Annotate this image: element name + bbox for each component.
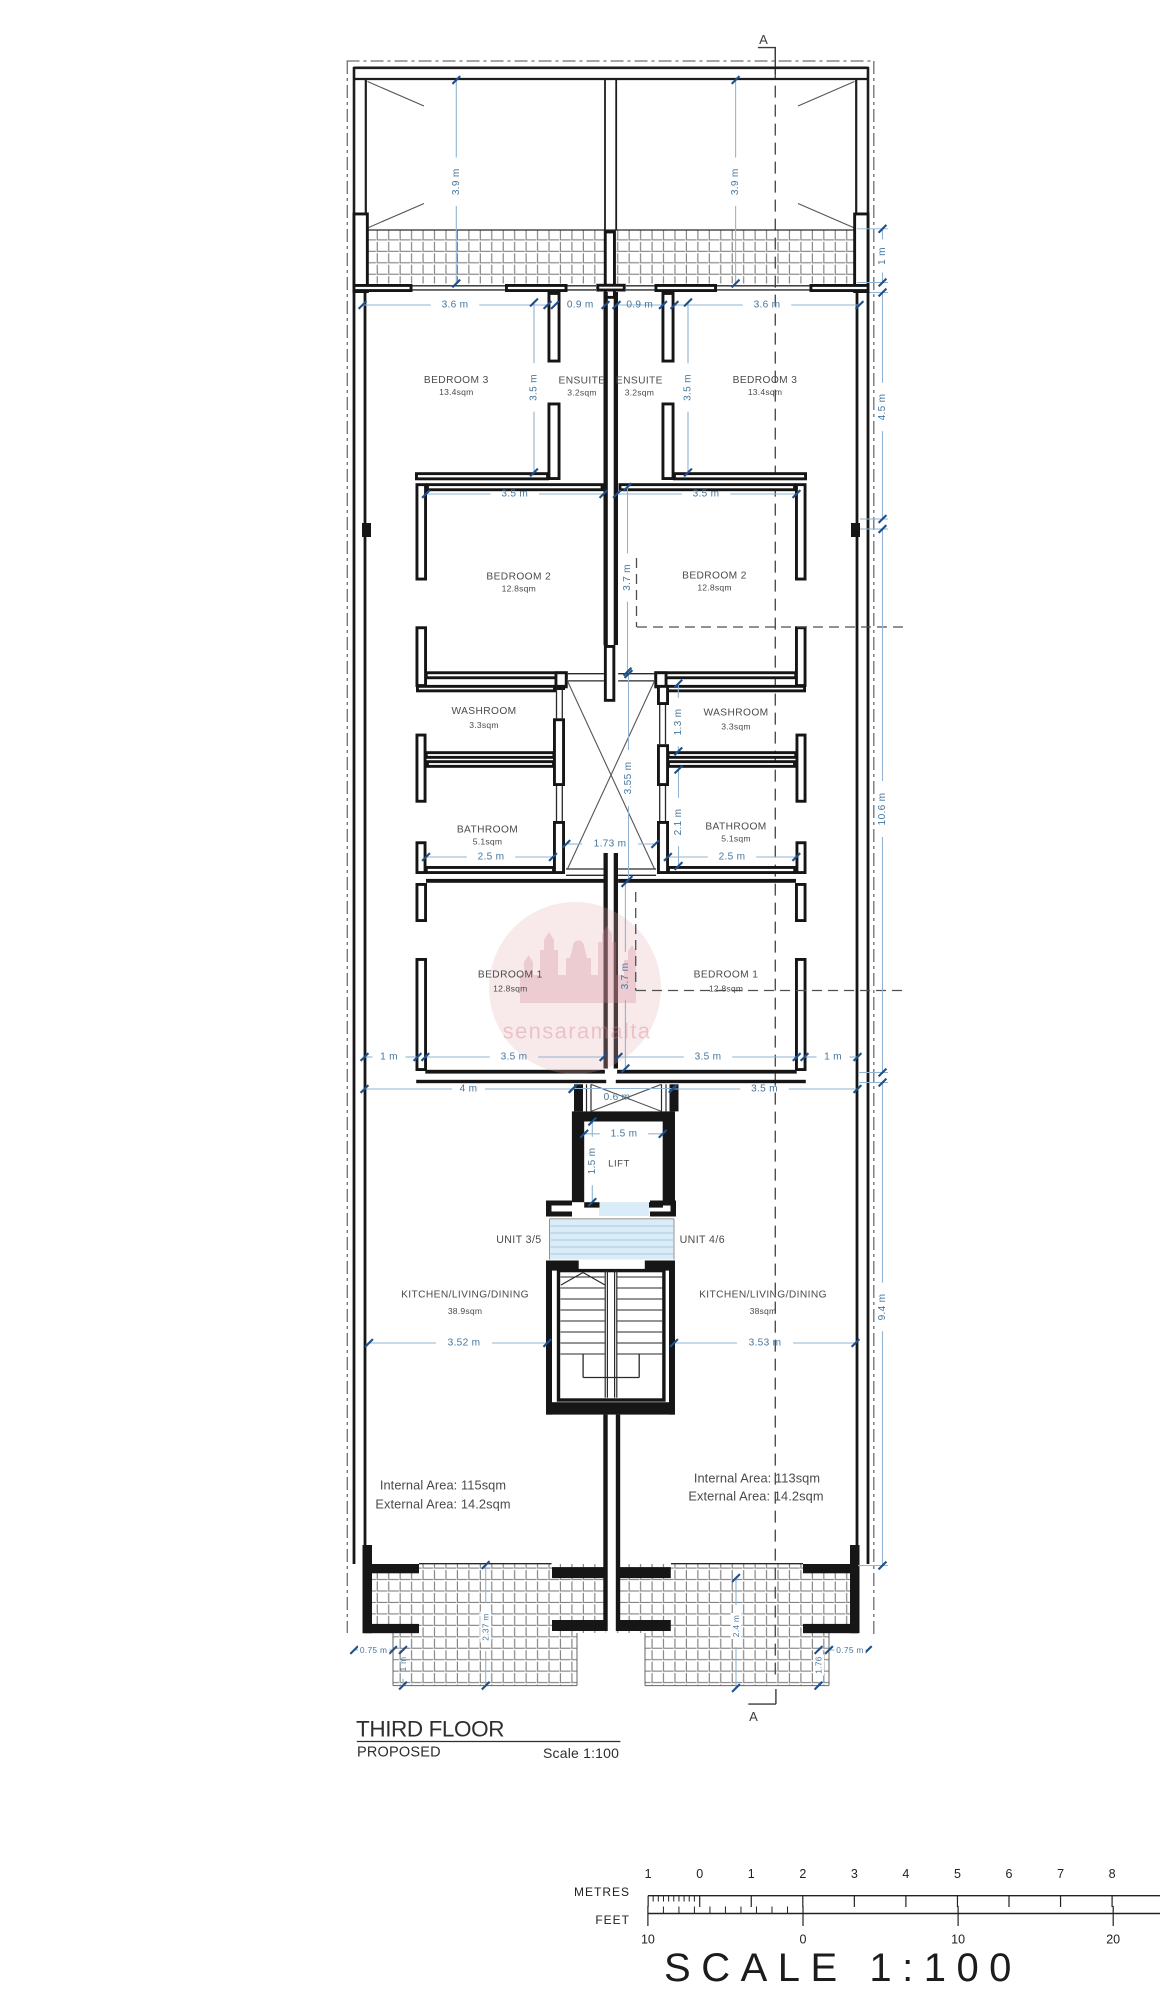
svg-text:ENSUITE: ENSUITE [616, 376, 663, 387]
svg-text:SCALE 1:100: SCALE 1:100 [664, 1946, 1022, 1990]
svg-text:ENSUITE: ENSUITE [559, 376, 606, 387]
svg-text:4 m: 4 m [460, 1084, 478, 1095]
svg-text:0.75 m: 0.75 m [360, 1645, 387, 1655]
svg-text:1.73 m: 1.73 m [594, 839, 627, 850]
svg-text:1.5 m: 1.5 m [611, 1128, 638, 1139]
svg-text:THIRD FLOOR: THIRD FLOOR [356, 1717, 504, 1742]
svg-text:3.55 m: 3.55 m [623, 762, 634, 795]
svg-text:3.6 m: 3.6 m [442, 300, 469, 311]
svg-text:3.7 m: 3.7 m [622, 564, 633, 591]
svg-text:PROPOSED: PROPOSED [357, 1745, 441, 1761]
svg-text:3.9 m: 3.9 m [451, 168, 462, 195]
svg-text:FEET: FEET [595, 1913, 630, 1927]
svg-text:External Area: 14.2sqm: External Area: 14.2sqm [688, 1489, 823, 1504]
svg-text:3.5 m: 3.5 m [501, 489, 528, 500]
svg-text:3.5 m: 3.5 m [683, 374, 694, 401]
svg-text:METRES: METRES [574, 1885, 630, 1899]
svg-text:2.4 m: 2.4 m [731, 1615, 741, 1637]
svg-text:BEDROOM 2: BEDROOM 2 [682, 571, 747, 582]
svg-text:12.8sqm: 12.8sqm [502, 584, 536, 594]
svg-text:BATHROOM: BATHROOM [457, 825, 518, 836]
svg-text:20: 20 [1106, 1933, 1120, 1947]
svg-text:13.4sqm: 13.4sqm [748, 387, 782, 397]
svg-text:5: 5 [954, 1867, 961, 1881]
svg-text:12.8sqm: 12.8sqm [493, 984, 527, 994]
svg-text:4: 4 [902, 1867, 909, 1881]
svg-text:WASHROOM: WASHROOM [451, 706, 516, 717]
svg-text:1: 1 [645, 1867, 652, 1881]
svg-text:0: 0 [800, 1933, 807, 1947]
svg-text:3.3sqm: 3.3sqm [469, 720, 498, 730]
svg-text:3.52 m: 3.52 m [448, 1338, 481, 1349]
svg-text:2.5 m: 2.5 m [478, 852, 505, 863]
svg-text:12.8sqm: 12.8sqm [697, 583, 731, 593]
svg-text:0.6 m: 0.6 m [604, 1092, 631, 1103]
svg-text:1 m: 1 m [380, 1052, 398, 1063]
svg-text:Internal Area: 115sqm: Internal Area: 115sqm [380, 1478, 506, 1493]
svg-text:10: 10 [641, 1933, 655, 1947]
svg-text:Scale 1:100: Scale 1:100 [543, 1745, 619, 1761]
svg-text:5.1sqm: 5.1sqm [473, 837, 502, 847]
svg-text:3.53 m: 3.53 m [749, 1338, 782, 1349]
svg-text:12.8sqm: 12.8sqm [709, 984, 743, 994]
svg-text:3.5 m: 3.5 m [695, 1052, 722, 1063]
svg-text:0.75 m: 0.75 m [836, 1645, 863, 1655]
svg-text:1: 1 [748, 1867, 755, 1881]
svg-text:2.37 m: 2.37 m [481, 1613, 491, 1640]
svg-text:BEDROOM 1: BEDROOM 1 [478, 970, 543, 981]
svg-text:6: 6 [1006, 1867, 1013, 1881]
svg-text:1.3 m: 1.3 m [673, 709, 684, 736]
svg-text:BEDROOM 1: BEDROOM 1 [694, 970, 759, 981]
svg-text:38sqm: 38sqm [750, 1306, 777, 1316]
svg-text:9.4 m: 9.4 m [877, 1294, 888, 1321]
svg-text:8: 8 [1109, 1867, 1116, 1881]
svg-text:5.1sqm: 5.1sqm [721, 834, 750, 844]
svg-text:10: 10 [951, 1933, 965, 1947]
svg-text:1.5 m: 1.5 m [587, 1148, 598, 1175]
svg-text:A: A [749, 1709, 758, 1724]
svg-text:38.9sqm: 38.9sqm [448, 1306, 482, 1316]
svg-text:KITCHEN/LIVING/DINING: KITCHEN/LIVING/DINING [401, 1290, 529, 1301]
svg-text:2.5 m: 2.5 m [719, 852, 746, 863]
svg-text:WASHROOM: WASHROOM [703, 708, 768, 719]
svg-text:1 m: 1 m [398, 1657, 408, 1672]
svg-text:3.6 m: 3.6 m [754, 300, 781, 311]
svg-text:A: A [759, 32, 768, 47]
svg-text:sensaramalta: sensaramalta [503, 1019, 652, 1044]
svg-text:1.76: 1.76 [814, 1656, 824, 1674]
svg-text:BEDROOM 3: BEDROOM 3 [733, 375, 798, 386]
svg-text:KITCHEN/LIVING/DINING: KITCHEN/LIVING/DINING [699, 1290, 827, 1301]
svg-text:3.5 m: 3.5 m [693, 489, 720, 500]
svg-text:UNIT 3/5: UNIT 3/5 [496, 1234, 541, 1246]
svg-text:2: 2 [799, 1867, 806, 1881]
svg-text:0.9 m: 0.9 m [626, 300, 653, 311]
svg-text:3.3sqm: 3.3sqm [721, 722, 750, 732]
svg-text:3.5 m: 3.5 m [529, 374, 540, 401]
svg-text:0: 0 [696, 1867, 703, 1881]
svg-text:Internal Area: 113sqm: Internal Area: 113sqm [694, 1471, 820, 1486]
svg-text:External Area: 14.2sqm: External Area: 14.2sqm [375, 1497, 510, 1512]
svg-text:BEDROOM 2: BEDROOM 2 [486, 572, 551, 583]
svg-text:3.2sqm: 3.2sqm [625, 388, 654, 398]
svg-text:2.1 m: 2.1 m [673, 809, 684, 836]
svg-text:0.9 m: 0.9 m [567, 300, 594, 311]
svg-text:BEDROOM 3: BEDROOM 3 [424, 375, 489, 386]
svg-text:3.5 m: 3.5 m [751, 1084, 778, 1095]
svg-text:1 m: 1 m [824, 1052, 842, 1063]
svg-text:3.5 m: 3.5 m [501, 1052, 528, 1063]
svg-text:10.6 m: 10.6 m [877, 793, 888, 826]
svg-text:3.7 m: 3.7 m [620, 963, 631, 990]
svg-text:1 m: 1 m [877, 247, 888, 265]
svg-text:4.5 m: 4.5 m [877, 394, 888, 421]
svg-text:LIFT: LIFT [608, 1159, 630, 1170]
svg-text:13.4sqm: 13.4sqm [439, 387, 473, 397]
svg-text:3.9 m: 3.9 m [730, 168, 741, 195]
svg-text:3.2sqm: 3.2sqm [567, 388, 596, 398]
svg-text:3: 3 [851, 1867, 858, 1881]
svg-text:7: 7 [1057, 1867, 1064, 1881]
svg-text:BATHROOM: BATHROOM [705, 822, 766, 833]
svg-text:UNIT 4/6: UNIT 4/6 [680, 1234, 725, 1246]
